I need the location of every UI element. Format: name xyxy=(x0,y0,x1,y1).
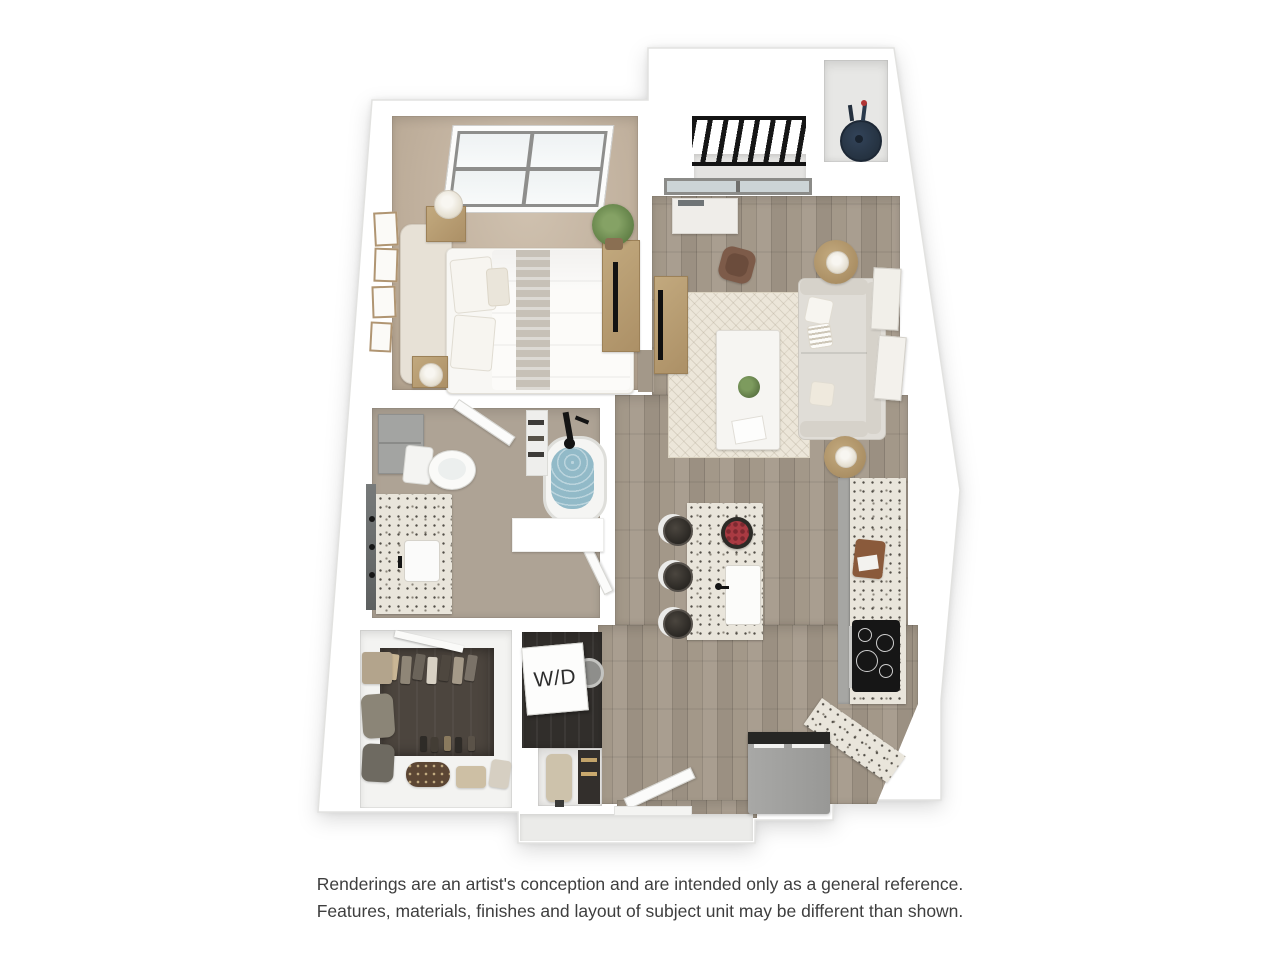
burner xyxy=(856,650,878,672)
disclaimer-line-1: Renderings are an artist's conception an… xyxy=(0,871,1280,898)
cabinet-seam xyxy=(379,442,421,444)
bar-stool xyxy=(663,562,693,592)
table-lamp xyxy=(419,363,443,387)
balcony-railing xyxy=(692,116,806,166)
coffee-table-plant xyxy=(738,376,760,398)
burner xyxy=(879,664,893,678)
tub-faucet-spout xyxy=(564,438,575,449)
window-pane xyxy=(526,171,600,204)
grill-tool-red-tip xyxy=(861,100,867,106)
basket xyxy=(456,766,486,788)
refrigerator-top xyxy=(748,732,830,744)
apples xyxy=(725,521,749,545)
towel xyxy=(528,452,544,457)
shoes xyxy=(581,758,597,762)
sofa-armrest xyxy=(800,421,868,437)
shoes xyxy=(420,736,427,751)
washer-dryer-label: W/D xyxy=(533,665,577,693)
handbag xyxy=(488,759,512,790)
wall-art-frame xyxy=(371,286,396,319)
bedroom-window xyxy=(443,126,614,212)
towel xyxy=(528,436,544,441)
sofa-striped-pillow xyxy=(806,322,833,349)
grill-knob xyxy=(855,135,863,143)
table-lamp xyxy=(826,251,849,274)
duffel-bag xyxy=(406,762,450,787)
vanity-faucet xyxy=(398,556,402,568)
shoes xyxy=(581,786,597,790)
shoes xyxy=(581,772,597,776)
bed-pillow xyxy=(450,314,497,371)
garment-bag xyxy=(361,743,395,783)
wall-art-frame xyxy=(369,321,393,352)
table-lamp xyxy=(835,446,857,468)
refrigerator-handle xyxy=(754,744,784,748)
floor-plan-render: W/D Renderings are an artist's conceptio… xyxy=(0,0,1280,960)
window-pane xyxy=(452,171,526,204)
island-sink xyxy=(725,565,761,625)
bathtub-water xyxy=(551,447,594,509)
plant-pot xyxy=(605,238,623,250)
disclaimer-line-2: Features, materials, finishes and layout… xyxy=(0,898,1280,925)
garment-bag xyxy=(361,693,396,739)
disclaimer: Renderings are an artist's conception an… xyxy=(0,871,1280,924)
window-pane xyxy=(456,134,530,167)
bedroom-tv xyxy=(613,262,618,332)
table-lamp xyxy=(434,190,463,219)
washer-dryer: W/D xyxy=(521,642,589,715)
refrigerator-handle xyxy=(792,744,824,748)
leaning-art-canvas xyxy=(870,267,901,330)
bathroom-half-wall xyxy=(512,518,604,552)
bar-stool xyxy=(663,516,693,546)
bed-accent-pillow xyxy=(486,267,511,306)
window-pane xyxy=(530,134,604,167)
desk-mirror xyxy=(678,200,704,206)
shoes xyxy=(444,736,451,751)
shoes xyxy=(455,737,462,752)
vanity-sink xyxy=(404,540,440,582)
entry-porch xyxy=(520,814,753,841)
kitchen-towel xyxy=(857,555,879,572)
wall-art-frame xyxy=(373,211,399,246)
hanging-clothes xyxy=(400,656,412,685)
bedroom-doorway xyxy=(638,350,654,392)
entry-threshold xyxy=(614,806,692,816)
bar-stool xyxy=(663,609,693,639)
burner xyxy=(876,634,894,652)
balcony-sliding-door xyxy=(664,178,812,195)
bed-throw-blanket xyxy=(516,250,550,390)
island-faucet-base xyxy=(715,583,722,590)
vacuum-handle xyxy=(555,800,564,807)
sofa-cushion-seam xyxy=(801,352,867,354)
sofa-pillow xyxy=(804,296,835,327)
sconce-light xyxy=(369,572,375,578)
oven-handle xyxy=(849,626,852,688)
sofa-pillow xyxy=(809,381,836,408)
sconce-light xyxy=(369,516,375,522)
hanging-clothes xyxy=(426,657,437,684)
leaning-art-canvas xyxy=(873,335,906,401)
storage-box xyxy=(362,652,392,684)
shoes xyxy=(468,736,475,751)
vacuum xyxy=(546,754,572,802)
wall-art-frame xyxy=(373,248,398,283)
toilet-seat xyxy=(438,458,466,480)
sconce-light xyxy=(369,544,375,550)
shoes xyxy=(431,737,438,752)
burner xyxy=(858,628,872,642)
towel xyxy=(528,420,544,425)
living-room-tv xyxy=(658,290,663,360)
bedroom-dresser xyxy=(602,240,640,352)
